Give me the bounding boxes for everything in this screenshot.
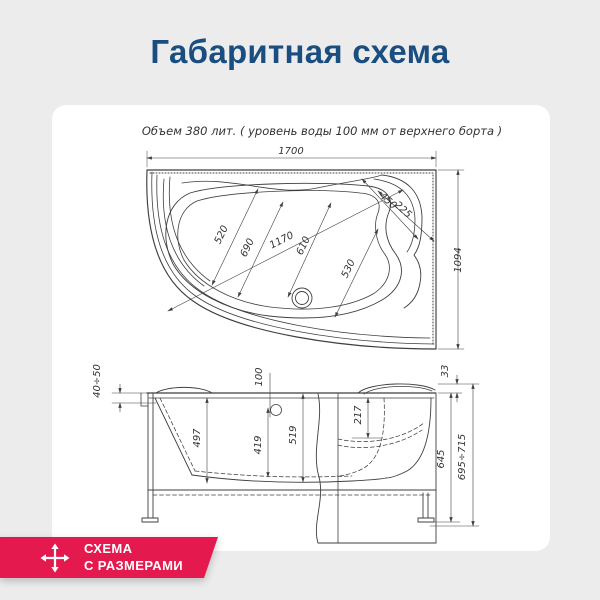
volume-note: Объем 380 лит. ( уровень воды 100 мм от … xyxy=(142,124,502,138)
dim-label-610: 610 xyxy=(295,235,313,257)
badge-line1: СХЕМА xyxy=(84,541,183,557)
dim-label-519: 519 xyxy=(288,425,299,444)
move-arrows-icon xyxy=(40,543,70,573)
dim-label-1094: 1094 xyxy=(453,247,464,272)
top-view-rim-contours xyxy=(147,170,436,349)
dim-label-1170: 1170 xyxy=(268,230,296,251)
dim-label-690: 690 xyxy=(239,237,257,259)
dim-label-645: 645 xyxy=(436,449,447,468)
dim-label-530: 530 xyxy=(340,258,358,280)
badge-text: СХЕМА С РАЗМЕРАМИ xyxy=(84,541,183,574)
dimensions-badge: СХЕМА С РАЗМЕРАМИ xyxy=(0,537,220,578)
page-title: Габаритная схема xyxy=(0,33,600,71)
dim-label-rim-thickness: 40÷50 xyxy=(92,364,103,398)
dim-label-height-range: 695÷715 xyxy=(457,434,468,481)
top-view-bowl xyxy=(166,183,402,318)
side-view-frame xyxy=(142,393,436,543)
dim-label-33: 33 xyxy=(440,365,451,378)
water-level-mark xyxy=(270,373,282,417)
drain-icon xyxy=(292,288,312,308)
dim-label-520: 520 xyxy=(213,224,231,246)
top-view-walls xyxy=(147,170,436,349)
bathtub-side-view: 40÷50 100 33 217 497 419 519 645 695÷715 xyxy=(92,364,479,543)
side-view-body xyxy=(141,384,436,543)
dim-label-1700: 1700 xyxy=(278,146,303,157)
dim-label-419: 419 xyxy=(253,435,264,454)
bathtub-top-view: 1700 1094 520 690 1170 610 530 450 225 xyxy=(147,146,464,349)
schematic-drawing: Объем 380 лит. ( уровень воды 100 мм от … xyxy=(52,105,550,551)
badge-line2: С РАЗМЕРАМИ xyxy=(84,558,183,574)
schematic-card: Объем 380 лит. ( уровень воды 100 мм от … xyxy=(52,105,550,551)
dim-label-water-level: 100 xyxy=(254,367,265,386)
dim-label-497: 497 xyxy=(192,428,203,448)
dim-label-225: 225 xyxy=(392,200,413,221)
dim-label-217: 217 xyxy=(353,405,364,425)
